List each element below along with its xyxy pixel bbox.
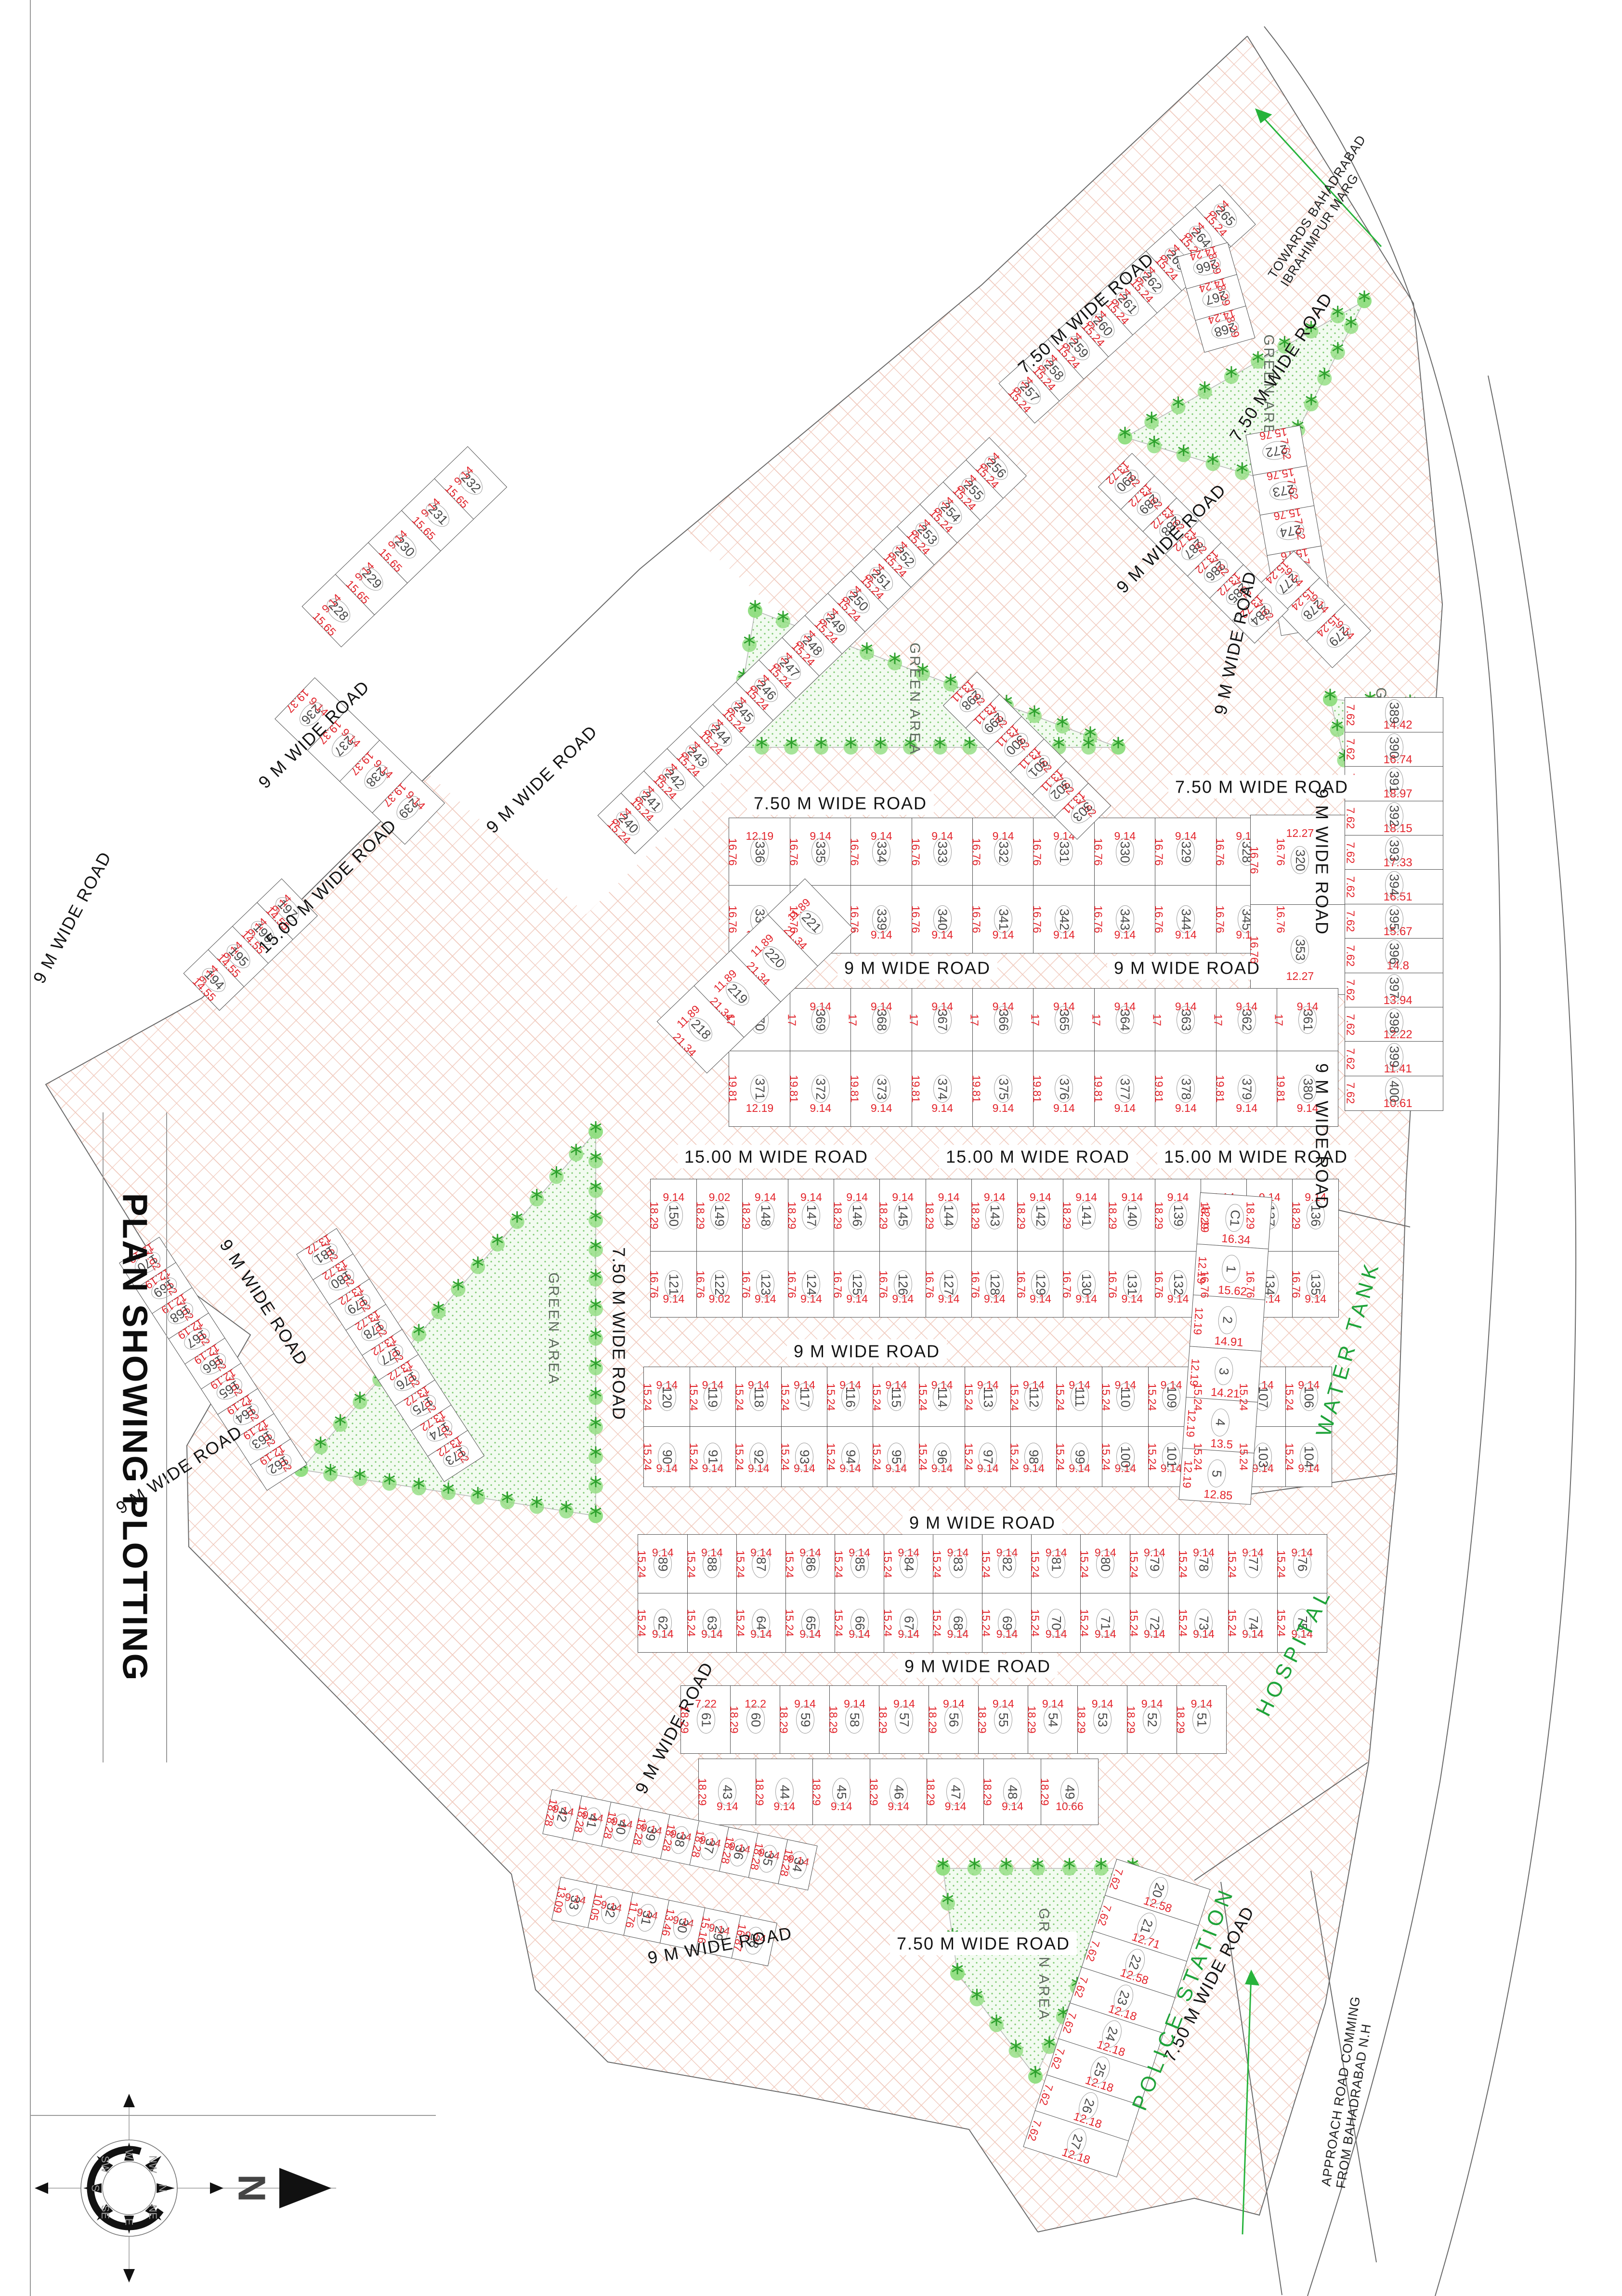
plot-cell: 9.1415.2480	[1080, 1534, 1130, 1594]
plot-number: 398	[1385, 1008, 1403, 1036]
road-label: 7.50 M WIDE ROAD	[747, 791, 934, 815]
depth-dim-label: 15.24	[1226, 1550, 1237, 1578]
plot-cell: 9.1415.2479	[1130, 1534, 1180, 1594]
depth-dim-label: 18.29	[1075, 1706, 1086, 1734]
plot-number-text: 398	[1387, 1012, 1401, 1033]
depth-dim-label: 15.24	[1100, 1443, 1112, 1471]
plot-number-text: 1	[1223, 1265, 1239, 1273]
depth-dim-label: 18.29	[1026, 1706, 1037, 1734]
plot-number: 140	[1123, 1201, 1141, 1229]
plot-number: 100	[1116, 1443, 1135, 1471]
tree-icon: *	[353, 1464, 367, 1493]
plot-cell: 9.1418.29145	[879, 1179, 926, 1252]
plot-number-text: 76	[1295, 1557, 1309, 1571]
plot-number: 342	[1055, 905, 1073, 933]
plot-number: 76	[1293, 1550, 1311, 1578]
plot-number-text: 101	[1164, 1446, 1179, 1468]
plot-cell: 9.1419.81375	[972, 1051, 1034, 1127]
svg-text:*: *	[968, 1854, 981, 1883]
plot-number-text: 55	[996, 1712, 1011, 1727]
plot-number-text: 26	[1079, 2097, 1098, 2115]
plot-number-text: 47	[948, 1785, 963, 1799]
depth-dim-label: 15.24	[685, 1550, 696, 1578]
plot-cell: 9.1415.24115	[873, 1367, 919, 1427]
depth-dim-label: 15.24	[1055, 1383, 1066, 1411]
plot-cell: 12.1914.912	[1190, 1295, 1265, 1352]
length-dim-label: 16.34	[1221, 1233, 1251, 1247]
plot-number-text: 121	[666, 1274, 681, 1295]
plot-number-text: 373	[874, 1078, 889, 1100]
depth-dim-label: 16.76	[1214, 906, 1225, 934]
plot-column: 7.6214.423897.6216.743907.6218.973917.62…	[1345, 698, 1443, 1111]
plot-number: 150	[665, 1201, 683, 1229]
tree-icon: *	[1177, 441, 1191, 470]
svg-text:*: *	[589, 1383, 602, 1412]
svg-text:*: *	[383, 1469, 396, 1498]
plot-number: 119	[704, 1383, 722, 1411]
plot-number: 147	[802, 1201, 820, 1229]
plot-number-text: 104	[1301, 1446, 1316, 1468]
plot-number: 104	[1300, 1443, 1318, 1471]
depth-dim-label: 15.24	[1226, 1609, 1237, 1637]
tree-icon: *	[589, 1176, 603, 1205]
plot-number-text: 129	[1033, 1274, 1048, 1295]
depth-dim-label: 16.76	[832, 1271, 843, 1299]
svg-text:*: *	[815, 733, 827, 762]
depth-dim-label: 18.29	[927, 1706, 938, 1734]
plot-number: 55	[994, 1706, 1012, 1734]
compass-direction-label: SW	[99, 2156, 111, 2173]
plot-cell: 9.1418.2954	[1028, 1685, 1078, 1754]
depth-dim-label: 15.24	[981, 1550, 992, 1578]
plot-cell: 9.0218.29149	[696, 1179, 743, 1252]
plot-number-text: 395	[1387, 909, 1401, 930]
plot-cell: 9.1416.76340	[912, 885, 973, 953]
plot-cell: 9.1415.2496	[919, 1426, 966, 1487]
plot-cell: 9.1415.2499	[1056, 1426, 1103, 1487]
plot-number-text: 330	[1117, 841, 1132, 862]
plot-cell: 9.1415.24111	[1056, 1367, 1103, 1427]
tree-icon: *	[530, 1492, 544, 1521]
tree-icon: *	[500, 1487, 514, 1516]
plot-number: 103	[1254, 1443, 1272, 1471]
depth-dim-label: 15.24	[1079, 1550, 1090, 1578]
plot-number: 141	[1077, 1201, 1096, 1229]
plot-cell: 9.1419.81378	[1155, 1051, 1216, 1127]
plot-cell: 9.1415.2469	[982, 1593, 1032, 1653]
plot-number-text: 394	[1387, 874, 1401, 896]
depth-dim-label: 19.81	[1032, 1075, 1043, 1103]
road-label: 9 M WIDE ROAD	[903, 1511, 1062, 1534]
plot-number-text: 74	[1245, 1616, 1260, 1630]
plot-number: 393	[1385, 836, 1403, 864]
plot-number-text: 48	[1005, 1785, 1020, 1799]
length-dim-label: 13.5	[1210, 1438, 1233, 1451]
width-dim-label: 9.14	[810, 1103, 831, 1114]
svg-text:*: *	[471, 1483, 484, 1512]
depth-dim-label: 15.24	[833, 1550, 844, 1578]
plot-cell: 9.1415.24110	[1102, 1367, 1149, 1427]
plot-number-text: 33	[566, 1894, 584, 1911]
plot-cell: 12.2716.76353	[1250, 904, 1349, 995]
plot-number: 391	[1385, 768, 1403, 796]
plot-cell: 7.6218.97391	[1345, 766, 1443, 801]
depth-dim-label: 18.29	[982, 1778, 993, 1806]
plot-number: 124	[802, 1270, 820, 1298]
svg-text:*: *	[934, 733, 946, 762]
plot-number: 66	[850, 1609, 869, 1637]
plot-number: 1	[1221, 1254, 1241, 1284]
depth-dim-label: 16.76	[849, 906, 860, 934]
svg-text:*: *	[1332, 301, 1344, 330]
depth-dim-label: 15.24	[917, 1443, 928, 1471]
plot-cell: 9.1418.2948	[983, 1759, 1041, 1825]
width-dim-label: 7.62	[1345, 876, 1356, 898]
svg-text:*: *	[845, 733, 857, 762]
svg-text:*: *	[1305, 390, 1318, 418]
depth-dim-label: 15.24	[1284, 1383, 1295, 1411]
plot-cell: 12.1916.76336	[729, 818, 790, 886]
width-dim-label: 12.19	[1185, 1409, 1198, 1437]
depth-dim-label: 15.24	[1008, 1443, 1020, 1471]
plot-number-text: 399	[1387, 1046, 1401, 1068]
width-dim-label: 9.14	[993, 1103, 1014, 1114]
plot-cell: 10.6618.2949	[1041, 1759, 1099, 1825]
plot-number-text: 32	[602, 1902, 619, 1919]
plot-number: 82	[998, 1550, 1016, 1578]
tree-icon: *	[1304, 390, 1319, 418]
depth-dim-label: 18.29	[697, 1778, 708, 1806]
plot-band: 7.2218.296112.218.29609.1418.29599.1418.…	[681, 1685, 1235, 1754]
plot-number: 70	[1047, 1609, 1065, 1637]
plot-number: 111	[1071, 1383, 1089, 1411]
plot-number-text: 228	[326, 598, 352, 624]
plot-number: 115	[887, 1383, 905, 1411]
depth-dim-label: 15.24	[871, 1383, 882, 1411]
svg-text:*: *	[1177, 441, 1190, 470]
plot-number-text: 78	[1196, 1557, 1211, 1571]
depth-dim-label: 18.29	[1291, 1201, 1302, 1229]
plot-number-text: 124	[804, 1274, 819, 1295]
plot-number: 2	[1217, 1305, 1238, 1335]
depth-dim-label: 18.29	[925, 1778, 936, 1806]
plot-cell: 9.1418.29144	[926, 1179, 972, 1252]
plot-number-text: 64	[754, 1616, 769, 1630]
plot-number: 110	[1116, 1383, 1135, 1411]
plot-cell: 7.6214.42389	[1345, 697, 1443, 732]
plot-cell: 9.1415.2485	[835, 1534, 885, 1594]
plot-number-text: 353	[1293, 939, 1308, 961]
plot-number-text: 125	[850, 1274, 864, 1295]
plot-number-text: 145	[895, 1204, 910, 1226]
plot-number: 116	[841, 1383, 860, 1411]
compass-direction-label: N	[157, 2184, 169, 2192]
plot-number-text: 367	[935, 1009, 950, 1031]
width-dim-label: 7.62	[1345, 808, 1356, 829]
plot-number: 372	[811, 1075, 830, 1103]
svg-text:*: *	[353, 1388, 366, 1417]
depth-dim-label: 18.29	[740, 1201, 751, 1229]
depth-dim-label: 16.76	[970, 838, 981, 866]
plot-number-text: 149	[712, 1204, 727, 1226]
depth-dim-label: 19.81	[970, 1075, 981, 1103]
plot-number-text: 131	[1125, 1274, 1139, 1295]
tree-icon: *	[510, 1207, 524, 1236]
plot-number: 367	[933, 1006, 952, 1034]
plot-row: 12.2716.76320	[1251, 815, 1350, 905]
plot-cell: 9.1415.2477	[1228, 1534, 1278, 1594]
tree-icon: *	[412, 1474, 426, 1502]
plot-number-text: 46	[891, 1785, 906, 1799]
plot-number: 371	[750, 1075, 769, 1103]
plot-number: 368	[872, 1006, 890, 1034]
plot-cell: 9.1415.24118	[735, 1367, 782, 1427]
plot-number: 109	[1162, 1383, 1180, 1411]
plot-number-text: 112	[1026, 1386, 1041, 1407]
length-dim-label: 12.85	[1203, 1488, 1233, 1502]
width-dim-label: 7.62	[1345, 1083, 1356, 1104]
tree-icon: *	[589, 1324, 603, 1353]
plot-number: 396	[1385, 939, 1403, 967]
plot-cell: 9.1416.76127	[926, 1251, 972, 1318]
plot-number: 79	[1145, 1550, 1164, 1578]
depth-dim-label: 18.29	[877, 1706, 889, 1734]
plot-number-text: 94	[843, 1449, 858, 1464]
plot-cell: 9.1415.2482	[982, 1534, 1032, 1594]
plot-number-text: 73	[1196, 1616, 1211, 1630]
plot-cell: 9.0216.76122	[696, 1251, 743, 1318]
plot-cell: 9.1418.2944	[756, 1759, 813, 1825]
plot-number-text: 113	[981, 1386, 995, 1407]
depth-dim-label: 17	[1151, 1014, 1163, 1026]
plot-number-text: 363	[1178, 1009, 1193, 1031]
width-dim-label: 12.19	[1188, 1358, 1201, 1386]
plot-cell: 9.1416.76343	[1094, 885, 1156, 953]
tree-icon: *	[1331, 301, 1345, 330]
plot-number-text: 218	[688, 1017, 714, 1043]
plot-cell: 9.1419.81379	[1216, 1051, 1278, 1127]
plot-number-text: 343	[1117, 909, 1132, 930]
plot-number: 397	[1385, 974, 1403, 1002]
plot-number-text: 219	[725, 981, 751, 1007]
plot-cell: 9.1417369	[790, 988, 851, 1052]
plot-number-text: 43	[720, 1785, 735, 1799]
plot-number: 72	[1145, 1609, 1164, 1637]
plot-number-text: 58	[847, 1712, 862, 1727]
depth-dim-label: 16.76	[727, 838, 738, 866]
plot-number-text: 80	[1098, 1557, 1113, 1571]
plan-canvas: ****************************************…	[0, 0, 1622, 2296]
plot-cell: 7.6213.94397	[1345, 973, 1443, 1008]
plot-number-text: 150	[666, 1204, 681, 1226]
svg-text:*: *	[1358, 287, 1371, 315]
plot-number-text: 62	[655, 1616, 670, 1630]
svg-text:*: *	[589, 1294, 602, 1323]
plot-number-text: 98	[1026, 1449, 1041, 1464]
plot-cell: 9.1416.76125	[834, 1251, 880, 1318]
depth-dim-label: 17	[1090, 1014, 1101, 1026]
plot-number: 67	[900, 1609, 918, 1637]
plot-number: 91	[704, 1443, 722, 1471]
plot-number-text: 88	[705, 1557, 719, 1571]
plot-number-text: 390	[1387, 737, 1401, 758]
plot-cell: 7.6216.51394	[1345, 869, 1443, 904]
tree-icon: *	[1081, 733, 1096, 762]
depth-dim-label: 16.76	[1153, 838, 1164, 866]
svg-text:*: *	[1331, 715, 1344, 744]
depth-dim-label: 18.29	[811, 1778, 822, 1806]
plot-number-text: 85	[852, 1557, 867, 1571]
plot-number: 143	[985, 1201, 1004, 1229]
plot-number: 365	[1055, 1006, 1073, 1034]
plot-cell: 9.1419.81374	[912, 1051, 973, 1127]
plot-cell: 9.1417361	[1277, 988, 1338, 1052]
tree-icon: *	[844, 733, 858, 762]
plot-cell: 9.1416.76131	[1109, 1251, 1155, 1318]
svg-text:*: *	[889, 649, 901, 678]
tree-icon: *	[873, 733, 888, 762]
depth-dim-label: 15.24	[636, 1550, 647, 1578]
plot-cell: 9.1418.2953	[1077, 1685, 1128, 1754]
plot-number: 332	[994, 838, 1012, 866]
boundary-line	[1194, 1762, 1368, 1880]
compass-direction-label: NW	[147, 2155, 159, 2173]
depth-dim-label: 15.24	[1146, 1383, 1157, 1411]
tree-icon: *	[933, 733, 947, 762]
depth-dim-label: 15.24	[882, 1609, 893, 1637]
plot-number-text: 91	[705, 1449, 720, 1464]
plot-number-text: 374	[935, 1078, 950, 1100]
plot-number: 112	[1024, 1383, 1043, 1411]
plot-number: 362	[1238, 1006, 1256, 1034]
svg-text:*: *	[749, 596, 761, 625]
depth-dim-label: 16.76	[1107, 1271, 1118, 1299]
plot-number: 43	[718, 1778, 736, 1806]
depth-dim-label: 17	[786, 1014, 797, 1026]
plot-number: 392	[1385, 802, 1403, 830]
plot-number-text: 144	[942, 1204, 956, 1226]
plot-number-text: 2	[1220, 1316, 1235, 1324]
plot-cell: 9.1418.2958	[829, 1685, 880, 1754]
plot-number-text: 71	[1098, 1616, 1113, 1630]
plot-cell: 9.1415.2463	[687, 1593, 737, 1653]
plot-cell: 9.1415.2498	[1010, 1426, 1057, 1487]
svg-text:*: *	[511, 1207, 523, 1236]
plot-number: 330	[1116, 838, 1134, 866]
plot-cell: 9.1415.2472	[1130, 1593, 1180, 1653]
svg-text:*: *	[491, 1230, 504, 1259]
plot-number-text: 331	[1057, 841, 1072, 862]
depth-dim-label: 18.29	[754, 1778, 765, 1806]
tree-icon: *	[589, 1383, 603, 1412]
tree-icon: *	[968, 1854, 982, 1883]
plot-number: 95	[887, 1443, 905, 1471]
plot-number-text: 93	[797, 1449, 812, 1464]
tree-icon: *	[1235, 458, 1249, 487]
svg-text:*: *	[1324, 685, 1336, 714]
plot-cell: 9.1416.76339	[850, 885, 912, 953]
plot-number: 88	[703, 1550, 721, 1578]
plot-number: 377	[1116, 1075, 1134, 1103]
depth-dim-label: 16.76	[788, 906, 799, 934]
plot-number: 139	[1169, 1201, 1187, 1229]
plot-cell: 9.1415.2483	[933, 1534, 983, 1594]
plot-cell: 7.6214.8396	[1345, 938, 1443, 973]
plot-number-text: 115	[889, 1386, 903, 1407]
plot-number: 113	[979, 1383, 997, 1411]
plot-number: 144	[940, 1201, 958, 1229]
depth-dim-label: 15.24	[917, 1383, 928, 1411]
depth-dim-label: 17	[1273, 1014, 1284, 1026]
svg-text:*: *	[1206, 449, 1219, 478]
plot-number: 400	[1385, 1077, 1403, 1105]
green-area-label: GREEN AREA	[546, 1272, 562, 1385]
plot-number-text: 90	[659, 1449, 674, 1464]
tree-icon: *	[589, 1265, 603, 1294]
tree-icon: *	[1224, 362, 1239, 391]
length-dim-label: 14.91	[1214, 1335, 1244, 1349]
plot-number-text: 25	[1091, 2061, 1110, 2079]
plot-number-text: 21	[1137, 1917, 1156, 1935]
tree-icon: *	[589, 1354, 603, 1383]
depth-dim-label: 16.76	[878, 1271, 889, 1299]
plot-row: 12.1919.813719.1419.813729.1419.813739.1…	[730, 1051, 1346, 1127]
tree-icon: *	[471, 1483, 485, 1512]
plot-number-text: 49	[1062, 1785, 1077, 1799]
tree-icon: *	[382, 1469, 397, 1498]
depth-dim-label: 16.76	[1249, 936, 1260, 964]
depth-dim-label: 16.76	[1032, 838, 1043, 866]
tree-icon: *	[1357, 287, 1372, 315]
plot-row: 12.2716.76353	[1251, 904, 1350, 995]
arrowhead-icon	[1244, 1969, 1259, 1986]
plot-row: 9.1418.29439.1418.29449.1418.29459.1418.…	[699, 1759, 1104, 1825]
plot-number-text: 68	[950, 1616, 965, 1630]
width-dim-label: 7.62	[1345, 739, 1356, 760]
svg-text:*: *	[324, 1460, 337, 1489]
plot-number-text: 30	[674, 1917, 692, 1934]
depth-dim-label: 15.24	[1177, 1609, 1188, 1637]
compass-north-label: N	[231, 2174, 274, 2202]
depth-dim-label: 15.24	[1192, 1443, 1203, 1471]
plot-number: 344	[1177, 905, 1195, 933]
plot-number-text: 67	[901, 1616, 916, 1630]
width-dim-label: 7.62	[1345, 1048, 1356, 1070]
plot-number-text: 378	[1178, 1078, 1193, 1100]
tree-icon: *	[989, 2010, 1004, 2039]
tree-icon: *	[1147, 431, 1162, 460]
depth-dim-label: 15.24	[833, 1609, 844, 1637]
plot-number-text: 45	[834, 1785, 849, 1799]
plot-number: 81	[1047, 1550, 1065, 1578]
plot-cell: 12.218.2960	[730, 1685, 781, 1754]
svg-text:*: *	[1082, 733, 1095, 762]
plot-number: 125	[848, 1270, 866, 1298]
svg-text:*: *	[1236, 458, 1248, 487]
plot-number: 343	[1116, 905, 1134, 933]
plot-number-text: 100	[1118, 1446, 1133, 1468]
plot-number-text: 143	[987, 1204, 1002, 1226]
plot-cell: 9.1415.24119	[690, 1367, 736, 1427]
svg-text:*: *	[1010, 2036, 1022, 2065]
plot-number-text: 83	[950, 1557, 965, 1571]
depth-dim-label: 15.24	[1128, 1550, 1139, 1578]
plot-number: 46	[889, 1778, 908, 1806]
plot-number-text: 31	[638, 1909, 655, 1927]
plot-cell: 9.1418.2951	[1177, 1685, 1227, 1754]
plot-cell: 9.1418.2957	[879, 1685, 929, 1754]
plot-number-text: 344	[1178, 909, 1193, 930]
